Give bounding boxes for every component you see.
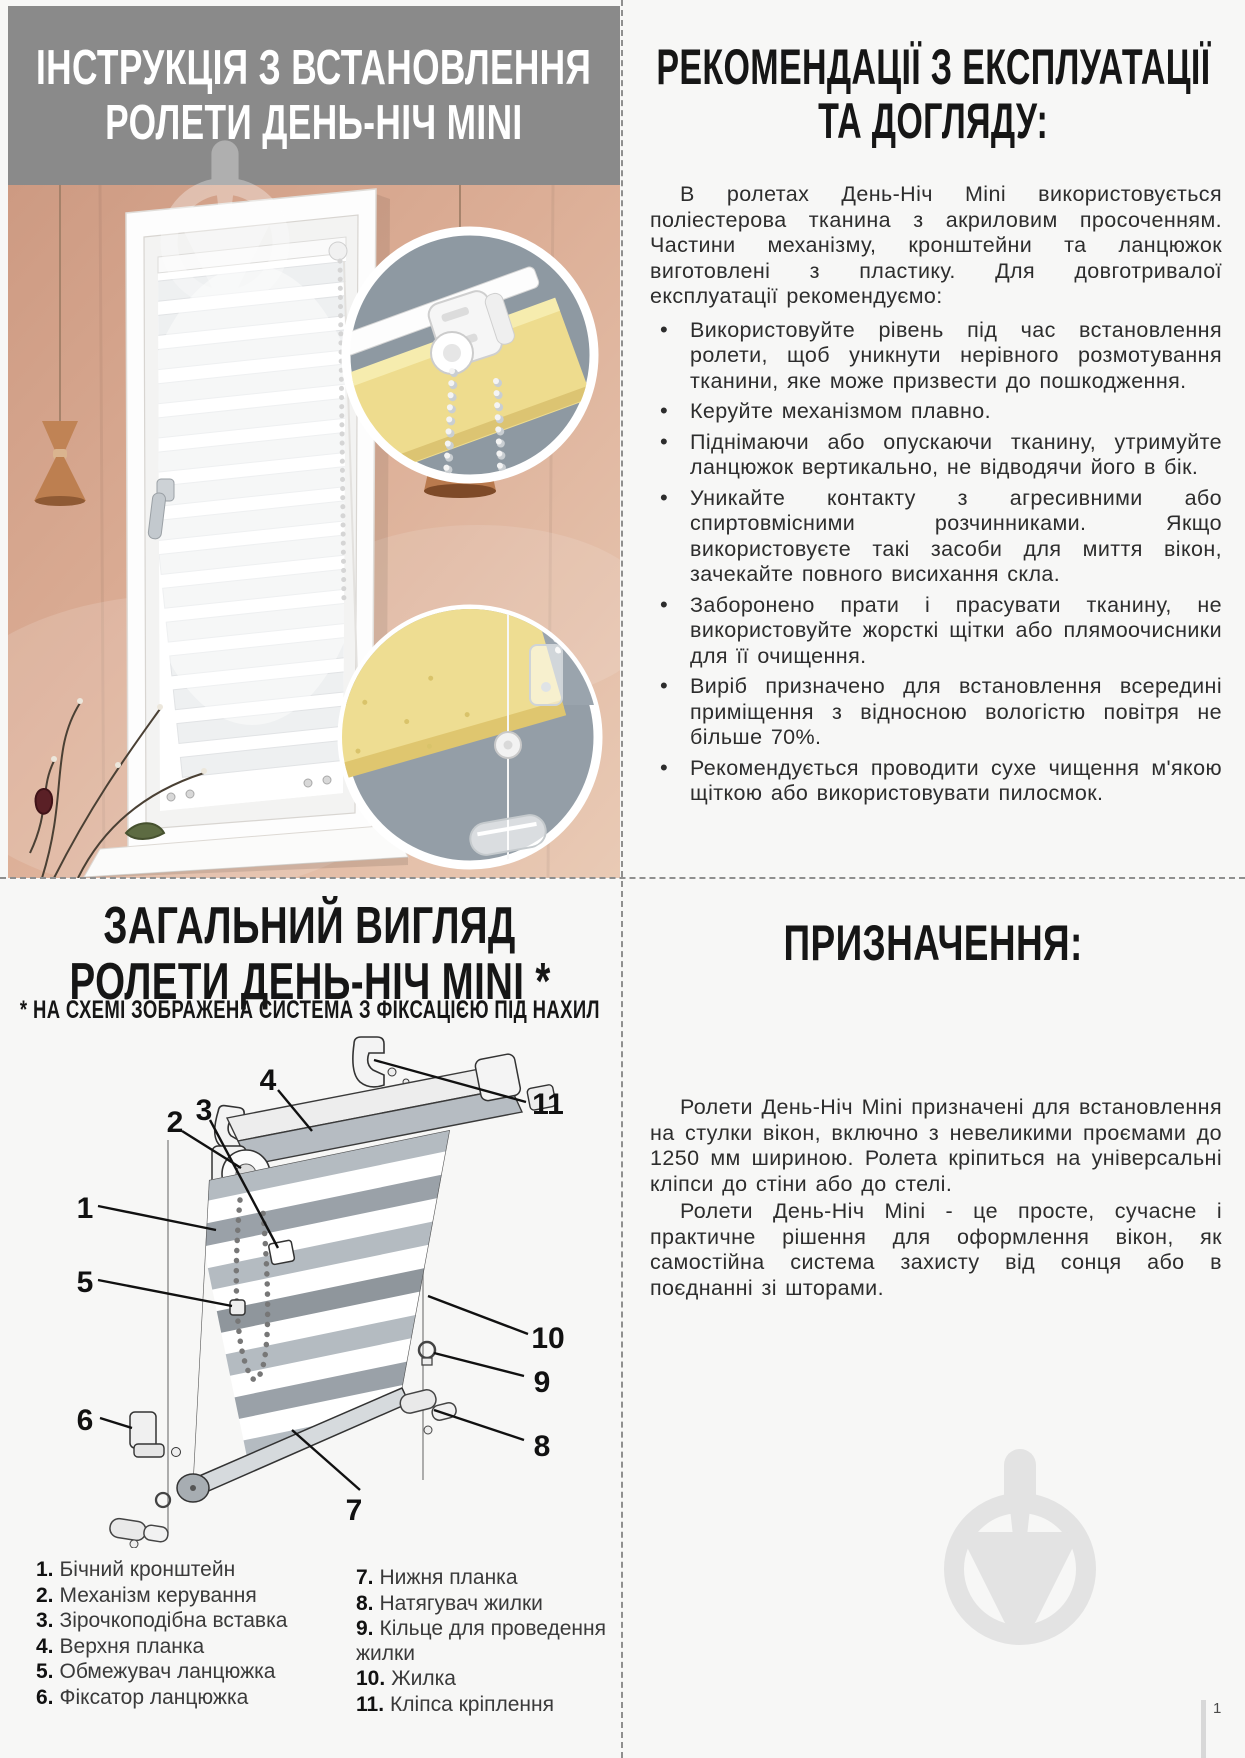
diagram-number-11: 11 bbox=[532, 1088, 564, 1121]
diagram-number-10: 10 bbox=[531, 1322, 564, 1355]
recommendations-title-line2: ТА ДОГЛЯДУ: bbox=[818, 96, 1048, 146]
overview-subtitle: * НА СХЕМІ ЗОБРАЖЕНА СИСТЕМА З ФІКСАЦІЄЮ… bbox=[0, 998, 620, 1023]
product-photo bbox=[8, 185, 620, 878]
trowel-logo-watermark-bottom bbox=[920, 1445, 1120, 1669]
legend-item: 11.Кліпса кріплення bbox=[356, 1693, 608, 1718]
legend-item: 3.Зірочкоподібна вставка bbox=[36, 1609, 341, 1634]
legend-item: 4.Верхня планка bbox=[36, 1635, 341, 1660]
recommendations-title: РЕКОМЕНДАЦІЇ З ЕКСПЛУАТАЦІЇ ТА ДОГЛЯДУ: bbox=[622, 40, 1245, 148]
recommendation-item: Керуйте механізмом плавно. bbox=[650, 399, 1222, 425]
chain-fixator bbox=[130, 1412, 181, 1457]
diagram-number-3: 3 bbox=[196, 1094, 213, 1127]
diagram-number-1: 1 bbox=[77, 1192, 94, 1225]
blind-control-mechanism bbox=[329, 242, 347, 260]
recommendations-list: Використовуйте рівень під час встановлен… bbox=[650, 318, 1222, 807]
dashed-divider-vertical bbox=[621, 0, 623, 1758]
legend-item: 8.Натягувач жилки bbox=[356, 1592, 608, 1617]
legend-column-1: 1.Бічний кронштейн 2.Механізм керування … bbox=[36, 1558, 341, 1711]
line-tensioner-parts-left bbox=[109, 1493, 170, 1548]
star-insert bbox=[268, 1240, 295, 1265]
legend-item: 7.Нижня планка bbox=[356, 1566, 608, 1591]
recommendation-item: Використовуйте рівень під час встановлен… bbox=[650, 318, 1222, 395]
diagram-number-4: 4 bbox=[260, 1064, 277, 1097]
blind-exploded-diagram: 1 2 3 4 5 6 7 8 9 10 11 bbox=[30, 1028, 585, 1548]
trowel-logo-watermark-top bbox=[140, 137, 310, 327]
page-number: 1 bbox=[1213, 1700, 1221, 1717]
overview-title: ЗАГАЛЬНИЙ ВИГЛЯД РОЛЕТИ ДЕНЬ-НІЧ MINI * bbox=[0, 898, 620, 1010]
dashed-divider-horizontal bbox=[0, 877, 1245, 879]
legend-item: 1.Бічний кронштейн bbox=[36, 1558, 341, 1583]
chain-limiter bbox=[230, 1300, 245, 1315]
legend-item: 10.Жилка bbox=[356, 1667, 608, 1692]
instruction-leaflet-page: { "colors": { "header_bg": "#8a8a8a", "w… bbox=[0, 0, 1245, 1758]
diagram-number-6: 6 bbox=[77, 1404, 94, 1437]
recommendation-item: Уникайте контакту з агресивними або спир… bbox=[650, 486, 1222, 588]
legend-item: 6.Фіксатор ланцюжка bbox=[36, 1686, 341, 1711]
recommendation-item: Заборонено прати і прасувати тканину, не… bbox=[650, 593, 1222, 670]
footer-divider-bar bbox=[1201, 1700, 1206, 1758]
diagram-fabric bbox=[190, 1115, 580, 1505]
header-line-1: ІНСТРУКЦІЯ З ВСТАНОВЛЕННЯ bbox=[36, 44, 591, 93]
legend-item: 5.Обмежувач ланцюжка bbox=[36, 1660, 341, 1685]
legend-item: 9.Кільце для проведення жилки bbox=[356, 1617, 608, 1666]
recommendation-item: Рекомендується проводити сухе чищення м'… bbox=[650, 756, 1222, 807]
diagram-number-5: 5 bbox=[77, 1266, 94, 1299]
recommendation-item: Виріб призначено для встановлення всеред… bbox=[650, 674, 1222, 751]
diagram-number-8: 8 bbox=[534, 1430, 551, 1463]
purpose-title: ПРИЗНАЧЕННЯ: bbox=[622, 918, 1245, 968]
overview-title-line1: ЗАГАЛЬНИЙ ВИГЛЯД bbox=[104, 900, 516, 952]
legend-item: 2.Механізм керування bbox=[36, 1584, 341, 1609]
installation-header: ІНСТРУКЦІЯ З ВСТАНОВЛЕННЯ РОЛЕТИ ДЕНЬ-НІ… bbox=[8, 6, 620, 185]
recommendation-item: Піднімаючи або опускаючи тканину, утриму… bbox=[650, 430, 1222, 481]
diagram-number-2: 2 bbox=[167, 1106, 184, 1139]
purpose-body: Ролети День-Ніч Mini призначені для вста… bbox=[650, 1095, 1222, 1303]
line-tensioner bbox=[530, 645, 562, 705]
purpose-paragraph-1: Ролети День-Ніч Mini призначені для вста… bbox=[650, 1095, 1222, 1197]
recommendations-intro: В ролетах День-Ніч Mini використовується… bbox=[650, 182, 1222, 310]
purpose-paragraph-2: Ролети День-Ніч Mini - це просте, сучасн… bbox=[650, 1199, 1222, 1301]
diagram-number-9: 9 bbox=[534, 1366, 551, 1399]
diagram-number-7: 7 bbox=[346, 1494, 363, 1527]
recommendations-body: В ролетах День-Ніч Mini використовується… bbox=[650, 182, 1222, 812]
recommendations-title-line1: РЕКОМЕНДАЦІЇ З ЕКСПЛУАТАЦІЇ bbox=[656, 42, 1210, 92]
legend-column-2: 7.Нижня планка 8.Натягувач жилки 9.Кільц… bbox=[356, 1566, 608, 1718]
